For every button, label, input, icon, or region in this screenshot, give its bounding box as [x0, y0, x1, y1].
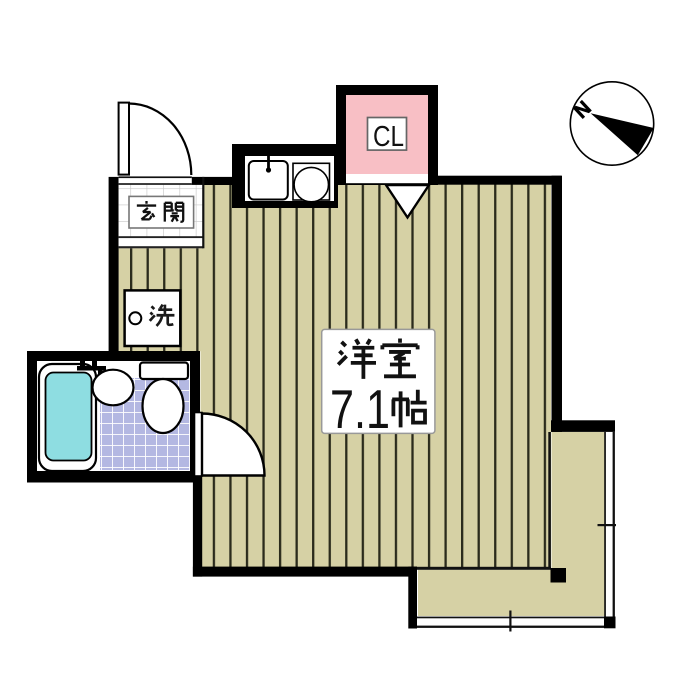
- svg-text:7.1: 7.1: [330, 378, 390, 440]
- svg-text:CL: CL: [373, 121, 404, 153]
